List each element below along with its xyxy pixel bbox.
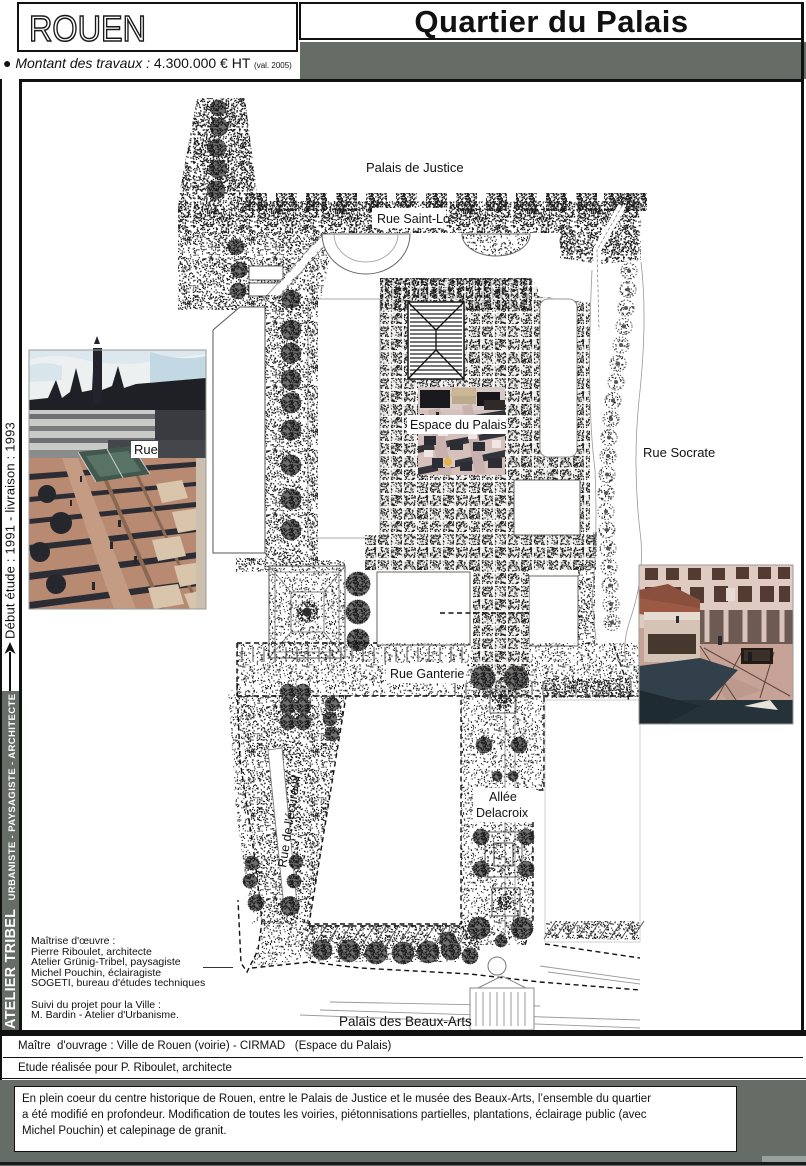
svg-text:Palais de Justice: Palais de Justice (366, 160, 464, 175)
svg-text:Allée: Allée (489, 790, 517, 804)
svg-text:Rue Ganterie: Rue Ganterie (390, 667, 464, 681)
svg-text:Rue Socrate: Rue Socrate (643, 445, 715, 460)
svg-text:Delacroix: Delacroix (476, 806, 529, 820)
svg-text:Espace du Palais: Espace du Palais (410, 418, 507, 432)
svg-text:POTERNE: POTERNE (593, 531, 599, 556)
svg-text:Palais des Beaux-Arts: Palais des Beaux-Arts (339, 1014, 472, 1029)
svg-text:Rue: Rue (134, 442, 158, 457)
svg-text:Rue Saint-Lo: Rue Saint-Lo (377, 212, 450, 226)
